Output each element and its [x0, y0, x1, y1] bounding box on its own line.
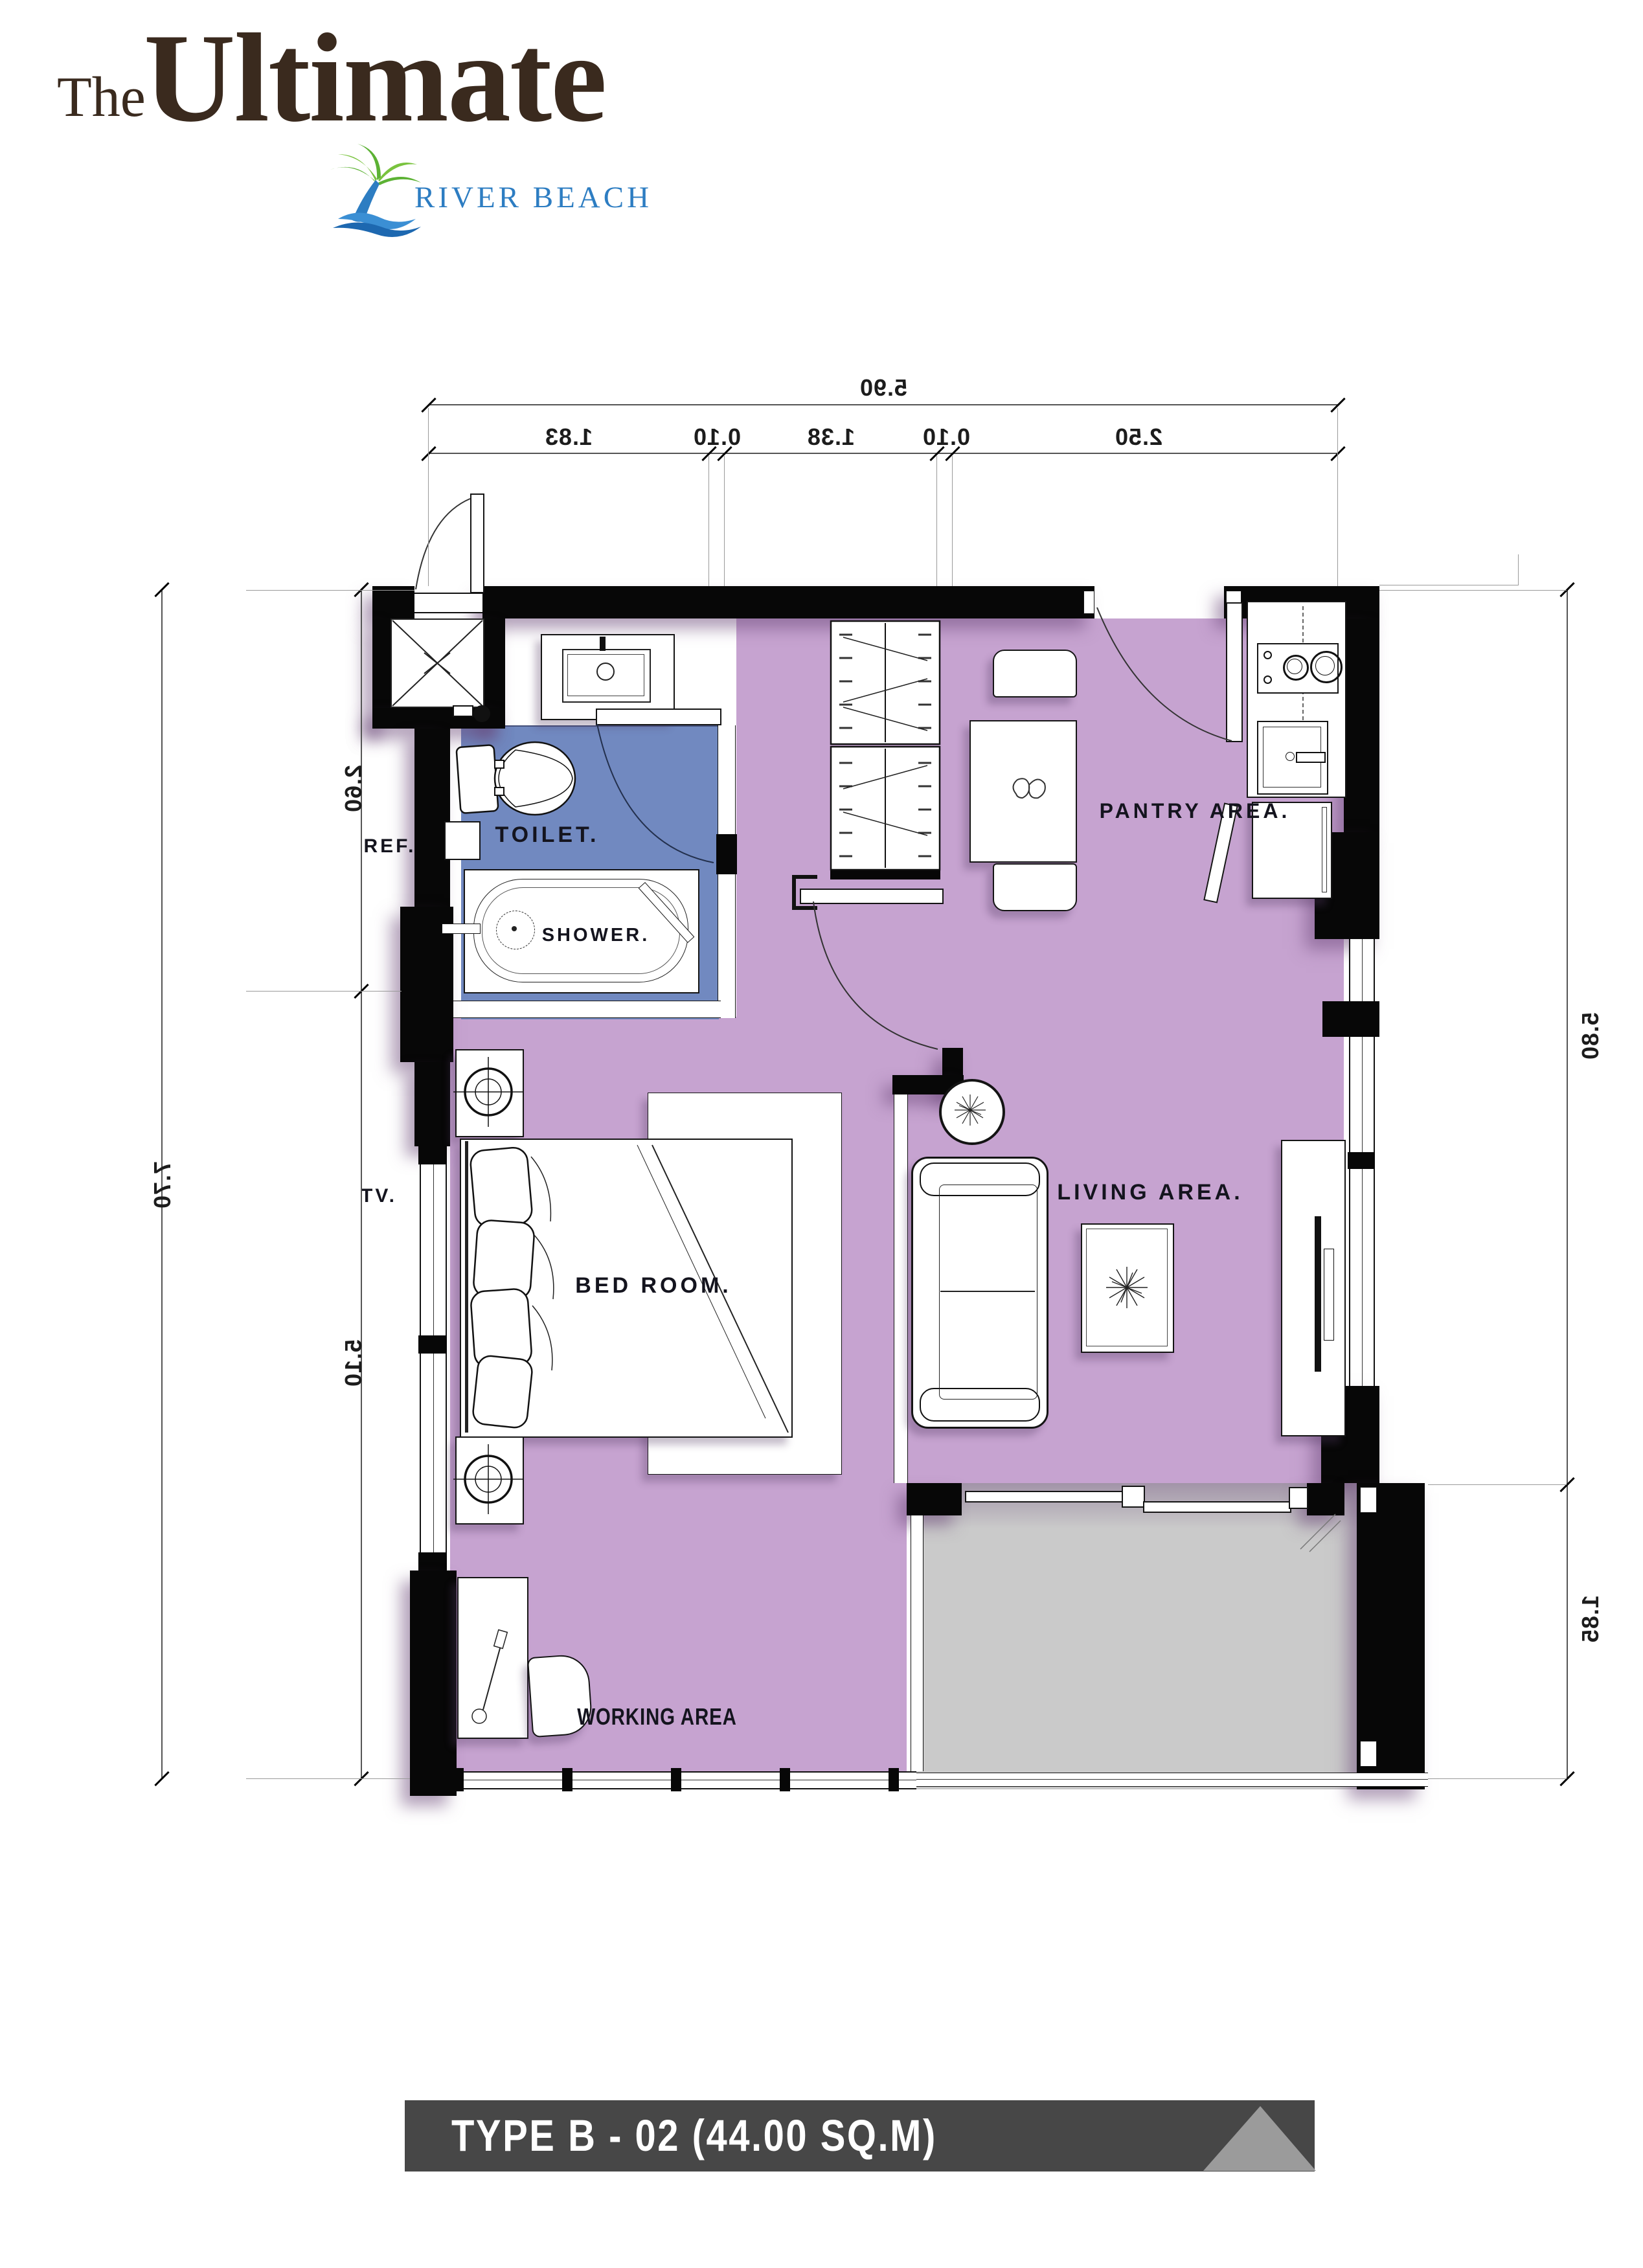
extension-line — [1428, 1778, 1567, 1779]
type-banner: TYPE B - 02 (44.00 SQ.M) — [405, 2100, 1315, 2172]
extension-line — [708, 456, 709, 586]
dim-top-seg-5: 2.50 — [1093, 424, 1184, 451]
dim-left-seg-2: 5.10 — [340, 1318, 366, 1409]
dim-top-seg-1: 1.83 — [523, 424, 614, 451]
extension-line — [428, 408, 429, 586]
label-living: LIVING AREA. — [1047, 1180, 1254, 1205]
extension-line — [936, 456, 937, 586]
context-line — [1518, 554, 1519, 585]
dim-top-seg-3: 1.38 — [786, 424, 876, 451]
dim-right-seg-2: 1.85 — [1577, 1574, 1603, 1664]
dim-line-top-segments — [429, 453, 1338, 454]
dim-top-seg-2: 0.10 — [678, 424, 756, 451]
dim-top-seg-4: 0.10 — [907, 424, 985, 451]
label-bedroom: BED ROOM. — [566, 1273, 741, 1298]
dim-line-top-total — [429, 404, 1338, 405]
dim-left-seg-1: 2.60 — [340, 743, 366, 834]
extension-line — [1337, 408, 1338, 586]
type-banner-text: TYPE B - 02 (44.00 SQ.M) — [451, 2100, 937, 2172]
label-shower: SHOWER. — [525, 925, 667, 946]
banner-triangle — [1203, 2102, 1316, 2171]
dim-left-outer: 7.70 — [149, 1140, 175, 1230]
dim-top-total: 5.90 — [838, 374, 929, 402]
label-ref: REF. — [351, 835, 429, 857]
extension-line — [246, 1778, 410, 1779]
extension-line — [246, 991, 402, 992]
extension-line — [724, 456, 725, 586]
label-working: WORKING AREA — [577, 1703, 726, 1730]
dim-line-right — [1567, 589, 1568, 1778]
extension-line — [952, 456, 953, 586]
label-pantry: PANTRY AREA. — [1088, 799, 1302, 823]
extension-line — [246, 590, 414, 591]
door-arcs — [0, 0, 1643, 2268]
extension-line — [1428, 1484, 1567, 1485]
label-toilet: TOILET. — [476, 822, 618, 848]
label-tv: TV. — [346, 1185, 411, 1207]
dim-right-seg-1: 5.80 — [1577, 991, 1603, 1082]
context-line — [1379, 585, 1519, 585]
extension-line — [1379, 590, 1567, 591]
floorplan-page: The Ultimate RIVER BEACH — [0, 0, 1643, 2268]
